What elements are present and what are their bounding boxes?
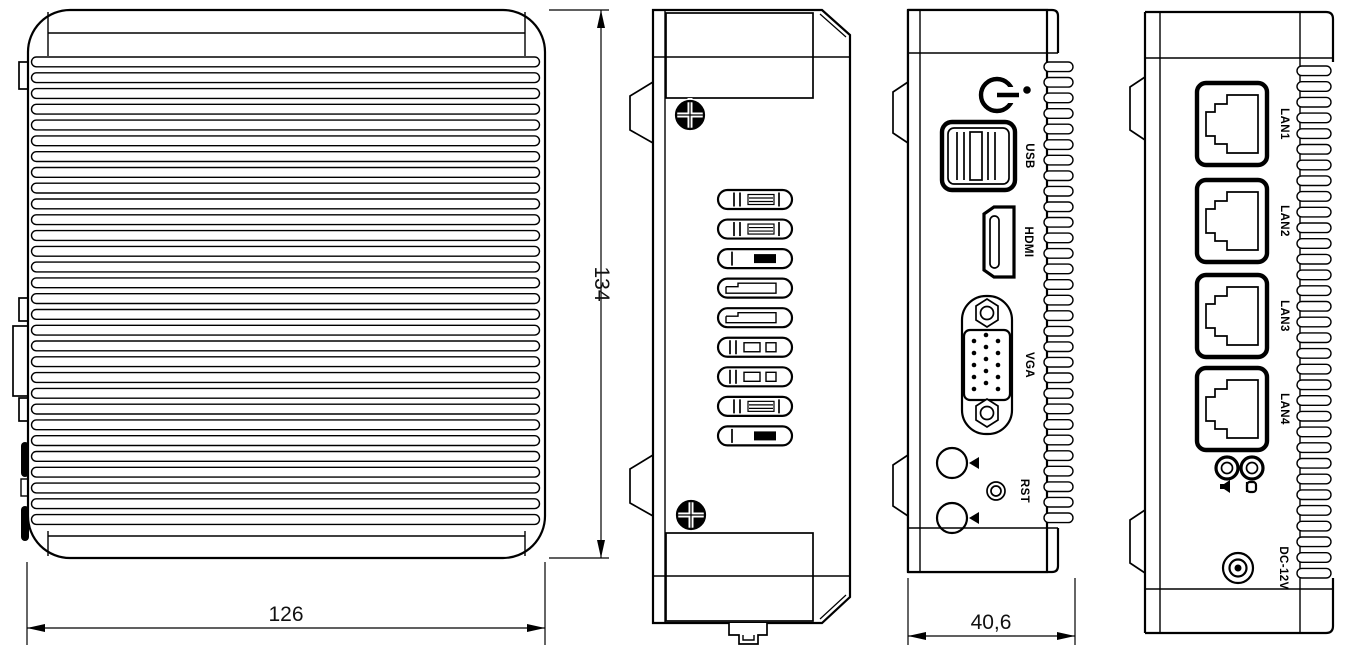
fin	[32, 262, 540, 272]
fin-tooth	[1297, 427, 1331, 437]
audio-jack-lineout[interactable]	[1216, 457, 1238, 479]
fin	[32, 215, 540, 225]
fin-tooth	[1297, 364, 1331, 374]
fin-tooth	[1044, 342, 1073, 352]
fin-tooth	[1044, 482, 1073, 492]
fin-tooth	[1044, 218, 1073, 228]
arrowhead	[908, 632, 926, 640]
fin	[32, 515, 540, 525]
lan-label: LAN2	[1278, 205, 1290, 237]
fin-tooth	[1044, 513, 1073, 523]
fin-tooth	[1044, 373, 1073, 383]
vent-slot	[718, 397, 792, 416]
fin-tooth	[1044, 186, 1073, 196]
fin-tooth	[1297, 474, 1331, 484]
fin	[32, 467, 540, 477]
lan-label: LAN4	[1278, 393, 1290, 425]
fin-tooth	[1297, 506, 1331, 516]
vent-slots	[718, 190, 792, 445]
top-view	[13, 10, 545, 558]
fin-tooth	[1044, 389, 1073, 399]
fin-tooth	[1297, 254, 1331, 264]
fin	[32, 120, 540, 130]
fin-tooth	[1044, 171, 1073, 181]
fin	[32, 168, 540, 178]
height-dimension-label: 134	[590, 266, 613, 301]
technical-drawing-canvas: 126 134	[0, 0, 1354, 647]
vga-edge-connector	[13, 326, 29, 396]
fin-tooth	[1297, 411, 1331, 421]
fin-tooth	[1297, 349, 1331, 359]
arrowhead	[1057, 632, 1075, 640]
audio-jack-mic[interactable]	[1241, 457, 1263, 479]
fin-tooth	[1044, 435, 1073, 445]
fin-tooth	[1044, 140, 1073, 150]
vent-slot	[718, 190, 792, 209]
fin	[32, 483, 540, 493]
fin-tooth	[1297, 176, 1331, 186]
fin	[32, 420, 540, 430]
mounting-ear	[893, 82, 908, 143]
fin	[32, 325, 540, 335]
fin-tooth	[1297, 270, 1331, 280]
fin	[32, 436, 540, 446]
mounting-ear	[630, 82, 653, 143]
fin	[32, 152, 540, 162]
fin-tooth	[1297, 223, 1331, 233]
fin-tooth	[1297, 66, 1331, 76]
fin	[32, 57, 540, 67]
mounting-ear	[630, 455, 653, 516]
lan-port[interactable]	[1197, 275, 1267, 357]
mounting-ear	[1130, 510, 1145, 573]
fin-tooth	[1297, 317, 1331, 327]
fin-tooth	[1297, 302, 1331, 312]
fin-tooth	[1297, 333, 1331, 343]
dc-power-label: DC-12V	[1277, 546, 1289, 589]
arrowhead	[597, 540, 605, 558]
arrowhead	[597, 10, 605, 28]
fin	[32, 246, 540, 256]
fin-tooth	[1297, 459, 1331, 469]
fin	[32, 452, 540, 462]
fin	[32, 373, 540, 383]
fin-tooth	[1044, 295, 1073, 305]
fin-tooth	[1044, 420, 1073, 430]
fin	[32, 310, 540, 320]
fin-tooth	[1297, 396, 1331, 406]
rear-io-view: LAN1LAN2LAN3LAN4 DC-12V	[1130, 12, 1333, 633]
fin-tooth	[1044, 249, 1073, 259]
vent-slot	[718, 367, 792, 386]
fin-tooth	[1297, 490, 1331, 500]
fin-tooth	[1044, 78, 1073, 88]
fin-tooth	[1297, 113, 1331, 123]
fin	[32, 104, 540, 114]
fin	[32, 231, 540, 241]
top-view-edge-connectors	[13, 62, 29, 541]
lan-port[interactable]	[1197, 83, 1267, 165]
width-dimension: 126	[27, 562, 545, 645]
mini-pc-orthographic-views: 126 134	[0, 0, 1354, 647]
fin-tooth	[1044, 280, 1073, 290]
fin-tooth	[1044, 109, 1073, 119]
fin-tooth	[1297, 286, 1331, 296]
fin-tooth	[1044, 124, 1073, 134]
fin-tooth	[1044, 233, 1073, 243]
fin-tooth	[1297, 521, 1331, 531]
fin-tooth	[1044, 93, 1073, 103]
arrowhead	[527, 624, 545, 632]
mic-icon	[1247, 482, 1256, 492]
left-side-view	[630, 10, 850, 644]
vent-slot	[718, 279, 792, 298]
fin-tooth	[1297, 82, 1331, 92]
fin-tooth	[1297, 192, 1331, 202]
lan-ports: LAN1LAN2LAN3LAN4	[1197, 83, 1290, 450]
fin-tooth	[1044, 466, 1073, 476]
fin	[32, 136, 540, 146]
fin	[32, 357, 540, 367]
fin	[32, 499, 540, 509]
fin-tooth	[1297, 239, 1331, 249]
usb-label: USB	[1023, 143, 1035, 168]
fin-tooth	[1297, 207, 1331, 217]
fin-tooth	[1044, 62, 1073, 72]
fin-tooth	[1297, 97, 1331, 107]
mounting-ear	[893, 455, 908, 516]
dc-power-jack[interactable]	[1223, 553, 1253, 583]
fin	[32, 278, 540, 288]
lan-port[interactable]	[1197, 368, 1267, 450]
fin-tooth	[1297, 568, 1331, 578]
fin	[32, 341, 540, 351]
fin-tooth	[1044, 497, 1073, 507]
fin-tooth	[1297, 160, 1331, 170]
lan-label: LAN3	[1278, 300, 1290, 332]
vent-slot	[718, 308, 792, 327]
bottom-connector-tab	[729, 623, 767, 644]
depth-dimension-label: 40,6	[971, 611, 1012, 634]
arrowhead	[27, 624, 45, 632]
width-dimension-label: 126	[268, 603, 303, 626]
mounting-ear	[1130, 77, 1145, 140]
fin-tooth	[1044, 311, 1073, 321]
fin	[32, 404, 540, 414]
fin	[32, 199, 540, 209]
vent-slot	[718, 426, 792, 445]
lan-port[interactable]	[1197, 180, 1267, 262]
fin-tooth	[1044, 451, 1073, 461]
fin-tooth	[1044, 264, 1073, 274]
fin-tooth	[1044, 202, 1073, 212]
hdmi-label: HDMI	[1022, 227, 1034, 258]
lan-label: LAN1	[1278, 108, 1290, 140]
fin-tooth	[1297, 145, 1331, 155]
power-led-indicator	[1023, 86, 1031, 94]
fin-tooth	[1297, 129, 1331, 139]
fin-profile	[1297, 66, 1331, 578]
front-io-view: USB HDMI VGA RST	[893, 10, 1073, 572]
fin	[32, 183, 540, 193]
fin-tooth	[1297, 380, 1331, 390]
vent-slot	[718, 249, 792, 268]
depth-dimension: 40,6	[908, 578, 1075, 645]
fin-tooth	[1297, 443, 1331, 453]
vent-slot	[718, 220, 792, 239]
fin-tooth	[1297, 553, 1331, 563]
fin-tooth	[1044, 326, 1073, 336]
fin-tooth	[1044, 404, 1073, 414]
fin-tooth	[1297, 537, 1331, 547]
reset-label: RST	[1018, 479, 1030, 503]
fin	[32, 73, 540, 83]
fin-tooth	[1044, 155, 1073, 165]
fin	[32, 294, 540, 304]
fin	[32, 89, 540, 99]
headphone-icon	[1220, 480, 1230, 493]
vent-slot	[718, 338, 792, 357]
fin-tooth	[1044, 357, 1073, 367]
fin-profile	[1044, 62, 1073, 523]
fin	[32, 388, 540, 398]
vga-label: VGA	[1023, 352, 1035, 378]
height-dimension: 134	[549, 10, 613, 558]
